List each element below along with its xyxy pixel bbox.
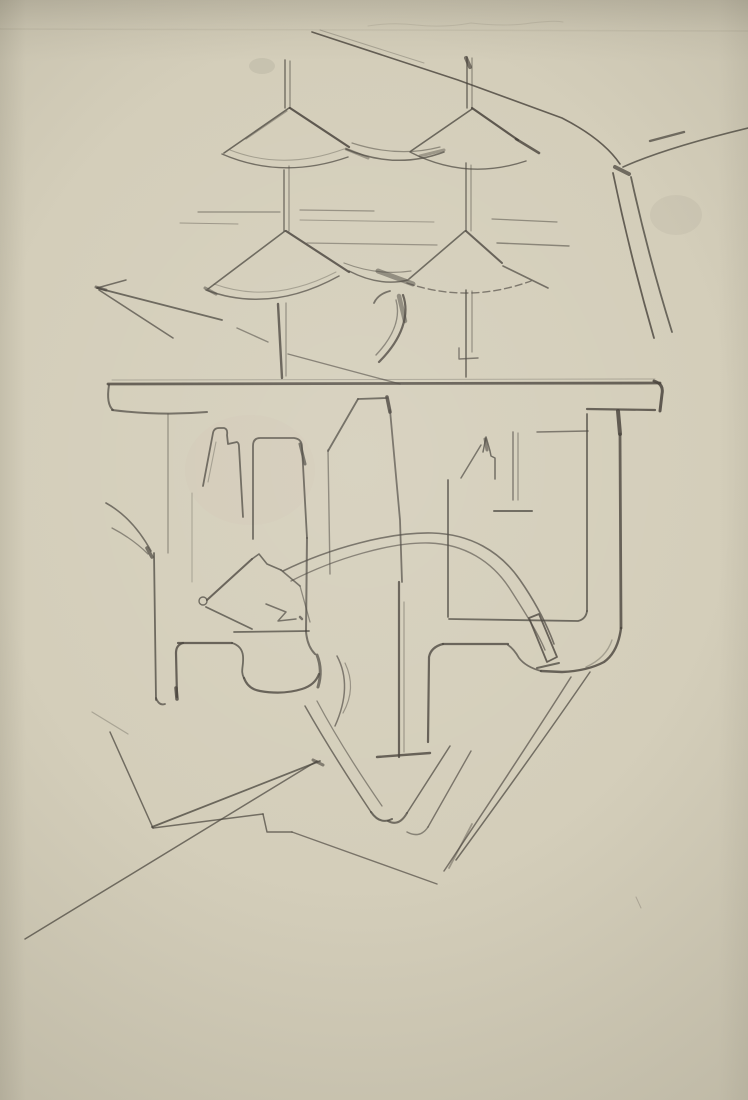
road-junction-blob	[615, 167, 629, 174]
central-foot-knob	[317, 655, 320, 687]
swag12-dark-left	[346, 149, 368, 158]
sw-road-a	[456, 672, 590, 860]
guide-line-6	[307, 243, 437, 245]
cone4-bottom-arc-hatched	[407, 281, 531, 293]
bottomleft-notch	[263, 814, 292, 832]
guide-line-4	[300, 220, 434, 222]
right-chamber-bottom	[449, 611, 587, 621]
kite-upper-edge	[207, 559, 252, 600]
central-foot-corner	[306, 631, 315, 654]
graphite-smudge-right-of-road	[650, 195, 702, 235]
right-leg-valley	[508, 645, 541, 671]
warm-tint-left-chamber	[185, 415, 315, 525]
photographed-pencil-sketch	[0, 0, 748, 1100]
road-main-diagonal	[312, 32, 620, 164]
ne-road-hook-b	[407, 827, 428, 835]
tower3-top-edge	[358, 398, 387, 399]
curl-hook	[374, 291, 390, 303]
cone1-left-edge	[224, 108, 289, 153]
tower3-right-edge	[390, 410, 402, 582]
right-leg-inner-shadow	[586, 640, 612, 667]
left-outer-wall-hook	[156, 698, 165, 704]
inner-vertical-corner-blob	[618, 411, 620, 434]
right-chamber-horizontal	[537, 431, 588, 432]
bar-main-line	[108, 383, 660, 384]
paper-crease-line	[0, 29, 748, 31]
short-diagonal-near-mast	[237, 328, 268, 342]
grass-blade-b	[112, 528, 148, 554]
se-road-b	[317, 701, 382, 806]
ne-road-a	[407, 746, 450, 813]
kite-lower-edge	[206, 607, 252, 629]
left-foot-right-corner	[232, 643, 244, 678]
bottomleft-se-edge	[292, 832, 437, 884]
cone2-right-tip-dark	[516, 139, 539, 153]
road-main-diagonal-double	[320, 30, 424, 63]
sketch-canvas	[0, 0, 748, 1100]
cone3-right-edge	[286, 231, 349, 272]
cone4-right-edge	[466, 231, 502, 263]
ne-road-b	[428, 751, 471, 827]
central-leg-foot	[377, 753, 430, 757]
right-leg-left-corner	[428, 644, 443, 742]
bar-left-ledge	[112, 410, 207, 414]
road-down-branch-a	[613, 173, 654, 338]
pencil-stroke-layer	[0, 21, 748, 939]
left-outer-wall	[154, 553, 156, 700]
bar-left-end-curl	[108, 385, 113, 410]
wedge-tip-dark	[96, 287, 106, 290]
tower3-left-edge	[328, 450, 330, 574]
inner-thick-vertical	[620, 434, 621, 628]
guide-line-7	[497, 243, 569, 246]
guide-line-5	[492, 219, 557, 222]
graphite-smudge-top-left-of-mast	[249, 58, 275, 74]
kite-tip-circle	[199, 597, 207, 605]
road-branch-dark-restroke	[650, 132, 684, 141]
left-foot-left-dark-end	[176, 688, 177, 699]
tower2-right-lower-vertical	[306, 538, 307, 631]
cone1-bottom-arc-double	[230, 149, 344, 160]
left-mast-lower-a	[278, 304, 282, 378]
faint-diagonal-left	[92, 712, 128, 734]
bottomleft-edge-up	[110, 732, 153, 828]
chimney-diagonal	[461, 445, 481, 478]
cone2-left-edge	[411, 109, 472, 151]
right-leg-bottom-curve	[541, 628, 621, 672]
grass-blade-dark-tip	[147, 548, 152, 557]
right-mast-collar	[459, 348, 478, 359]
kite-bottom-line	[234, 631, 309, 632]
kite-notch	[252, 554, 281, 570]
bar-right-lower-line	[587, 409, 655, 410]
bottomleft-long-diagonal	[25, 761, 317, 939]
se-road-a	[305, 706, 371, 812]
swag-cone1-cone2-b	[352, 143, 440, 152]
cone1-bottom-arc	[222, 154, 348, 168]
cone2-right-edge	[472, 108, 518, 140]
grass-blade-a	[106, 503, 151, 551]
kite-inner-dot	[300, 617, 302, 619]
kite-right-lower-line	[300, 586, 310, 622]
curl-inner	[376, 300, 397, 355]
cone1-left-edge-double	[246, 111, 287, 139]
central-foot-bottom-curve	[244, 674, 319, 693]
ramp-curve-a	[283, 533, 554, 644]
cone1-right-edge	[290, 108, 349, 147]
faint-scratch-bottom-right	[636, 897, 641, 908]
parenthesis-arc-a	[335, 656, 345, 726]
cone3-left-edge	[208, 231, 285, 289]
cone4-right-extension	[503, 266, 548, 288]
guide-line-3	[180, 223, 238, 224]
guide-line-2	[300, 210, 374, 211]
bar-right-end-hook	[654, 381, 662, 411]
faint-top-scribble	[368, 21, 563, 26]
kite-inner-zigzag	[266, 604, 296, 621]
se-road-hook	[371, 812, 392, 821]
cone4-left-edge	[409, 231, 465, 279]
rotated-rectangle-tick	[537, 663, 559, 668]
wedge-small-edge	[97, 280, 126, 288]
ne-road-hook-a	[388, 813, 407, 823]
sw-road-tail-restroke	[449, 824, 472, 868]
cone3-bottom-arc-double	[214, 272, 336, 292]
wedge-top-edge	[97, 288, 222, 320]
tower3-slant-top	[328, 399, 358, 451]
chimney-dark-tip	[485, 439, 487, 450]
road-branch-upper-right	[623, 128, 748, 167]
